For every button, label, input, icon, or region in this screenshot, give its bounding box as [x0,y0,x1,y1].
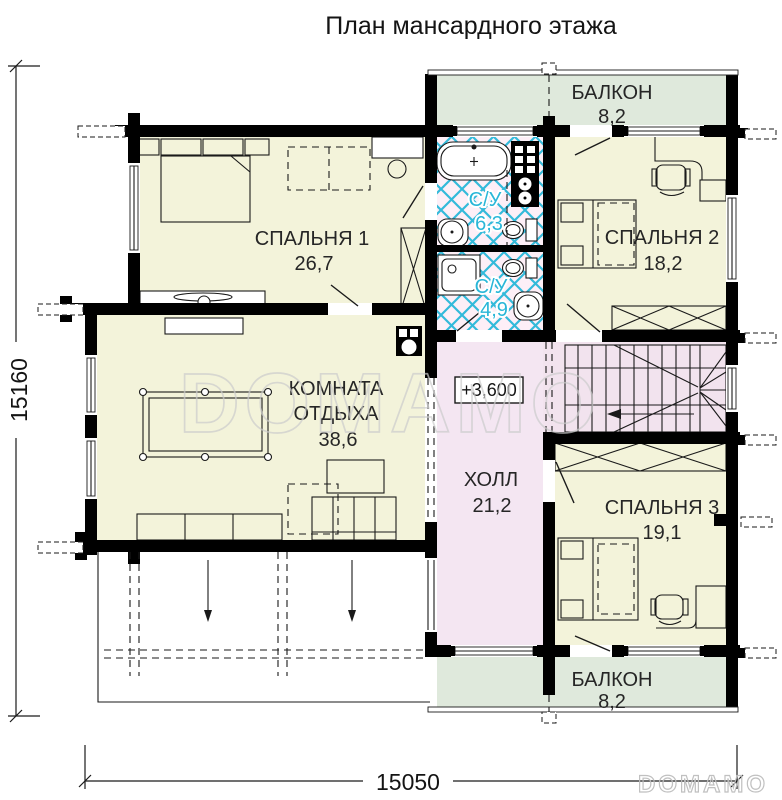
bathroom-bottom-name: С/У [475,276,508,298]
page-title: План мансардного этажа [325,12,617,40]
bathroom-partition [437,245,543,252]
bedroom2-area: 18,2 [644,253,683,275]
bathroom-bottom-area: 4,9 [480,299,508,321]
floor-plan-drawing: 15050 15160 План мансардного этажа БАЛКО… [0,0,782,800]
bedroom3-fill [555,444,726,645]
watermark-center: DOMAMO [179,356,601,450]
bedroom1-name: СПАЛЬНЯ 1 [255,228,369,250]
dimension-width: 15050 [376,769,440,795]
watermark-corner: DOMAMO [638,771,768,798]
bedroom1-area: 26,7 [295,253,334,275]
dressing-table [372,137,423,158]
hall-area: 21,2 [473,495,512,517]
toilet-1 [526,219,537,241]
balcony-top-name: БАЛКОН [571,82,652,104]
floor-plan-page: 15050 15160 План мансардного этажа БАЛКО… [0,0,782,800]
balcony-top-area: 8,2 [598,106,626,128]
toilet-2 [526,258,537,278]
bathroom-top-area: 6,3 [475,213,503,235]
balcony-bottom-railing [428,707,738,712]
void-area [98,552,430,702]
balcony-bottom-name: БАЛКОН [571,669,652,691]
balcony-bottom-area: 8,2 [598,691,626,713]
bedroom2-name: СПАЛЬНЯ 2 [605,227,719,249]
dimension-height: 15160 [6,358,32,422]
balcony-top-railing [428,70,738,75]
bedroom1-fill [140,137,425,303]
bathroom-top-name: С/У [469,189,502,211]
console-table [165,318,243,334]
hall-name: ХОЛЛ [464,469,518,491]
bedroom3-area: 19,1 [643,522,682,544]
bedroom3-name: СПАЛЬНЯ 3 [605,497,719,519]
